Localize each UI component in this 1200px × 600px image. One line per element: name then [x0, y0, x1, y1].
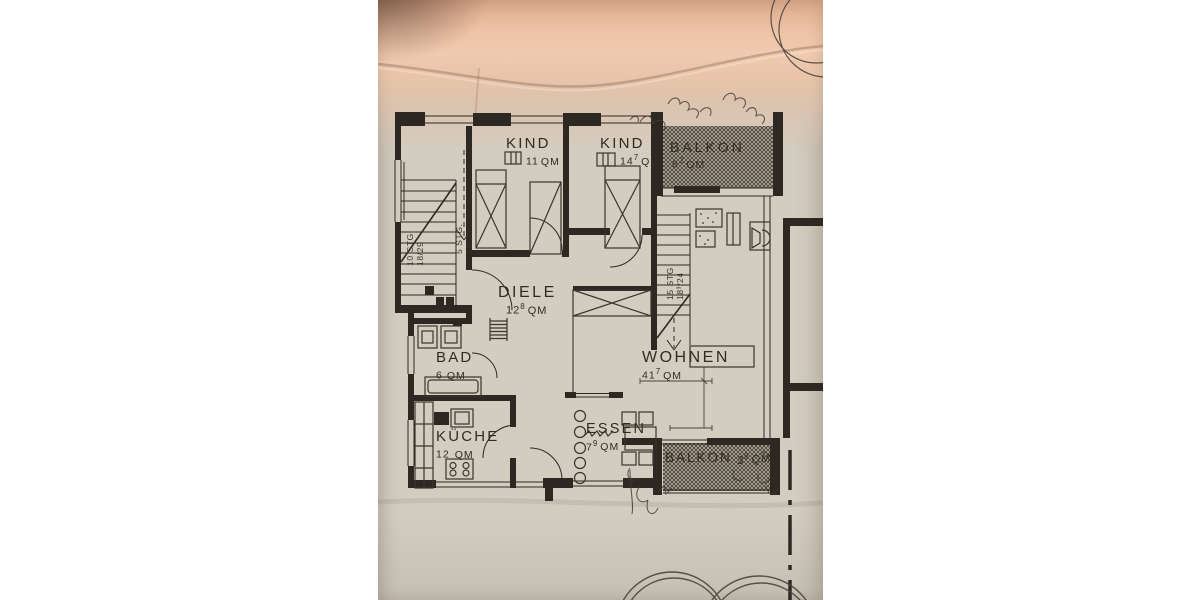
room-label-diele: DIELE 128QM [498, 284, 557, 318]
room-area: 6QM [436, 368, 473, 382]
floor-plan-drawing [378, 0, 823, 600]
room-area: 417QM [642, 368, 730, 382]
room-label-kueche: KÜCHE 12QM [436, 429, 500, 461]
stair-label-half-flight: 5 STG. 18/29 [454, 194, 474, 254]
plan-paper: KIND 11QM KIND 147QM BALKON 62QM DIELE 1… [378, 0, 823, 600]
room-name: BALKON [665, 451, 732, 466]
room-area: 147QM [620, 154, 660, 168]
room-label-bad: BAD 6QM [436, 350, 473, 382]
room-name: DIELE [498, 284, 557, 301]
room-area: 79QM [586, 440, 646, 454]
room-label-balkon-bottom: BALKON 39QM [665, 451, 771, 467]
room-name: WOHNEN [642, 349, 730, 366]
room-area: 11QM [526, 154, 560, 168]
room-name: KÜCHE [436, 429, 500, 445]
room-area: 62QM [672, 157, 745, 171]
stair-label-inner-flight: 15 STG 18³/24 [665, 234, 685, 300]
room-name: BAD [436, 350, 473, 366]
room-label-kind-1: KIND 11QM [506, 136, 560, 168]
room-name: BALKON [670, 140, 745, 155]
furniture-dots [699, 212, 717, 245]
room-area: 39QM [736, 451, 771, 468]
room-label-essen: ESSEN 79QM [586, 422, 646, 453]
room-area: 12QM [436, 447, 500, 461]
room-label-wohnen: WOHNEN 417QM [642, 349, 730, 382]
room-area: 128QM [506, 303, 557, 318]
room-name: KIND [506, 136, 560, 152]
stair-label-main-flight: 10 STG 18/29 [405, 194, 425, 266]
room-label-balkon-top: BALKON 62QM [670, 140, 745, 171]
room-label-kind-2: KIND 147QM [600, 136, 660, 168]
photo-of-floor-plan: KIND 11QM KIND 147QM BALKON 62QM DIELE 1… [0, 0, 1200, 600]
room-name: KIND [600, 136, 660, 152]
room-name: ESSEN [586, 422, 646, 438]
